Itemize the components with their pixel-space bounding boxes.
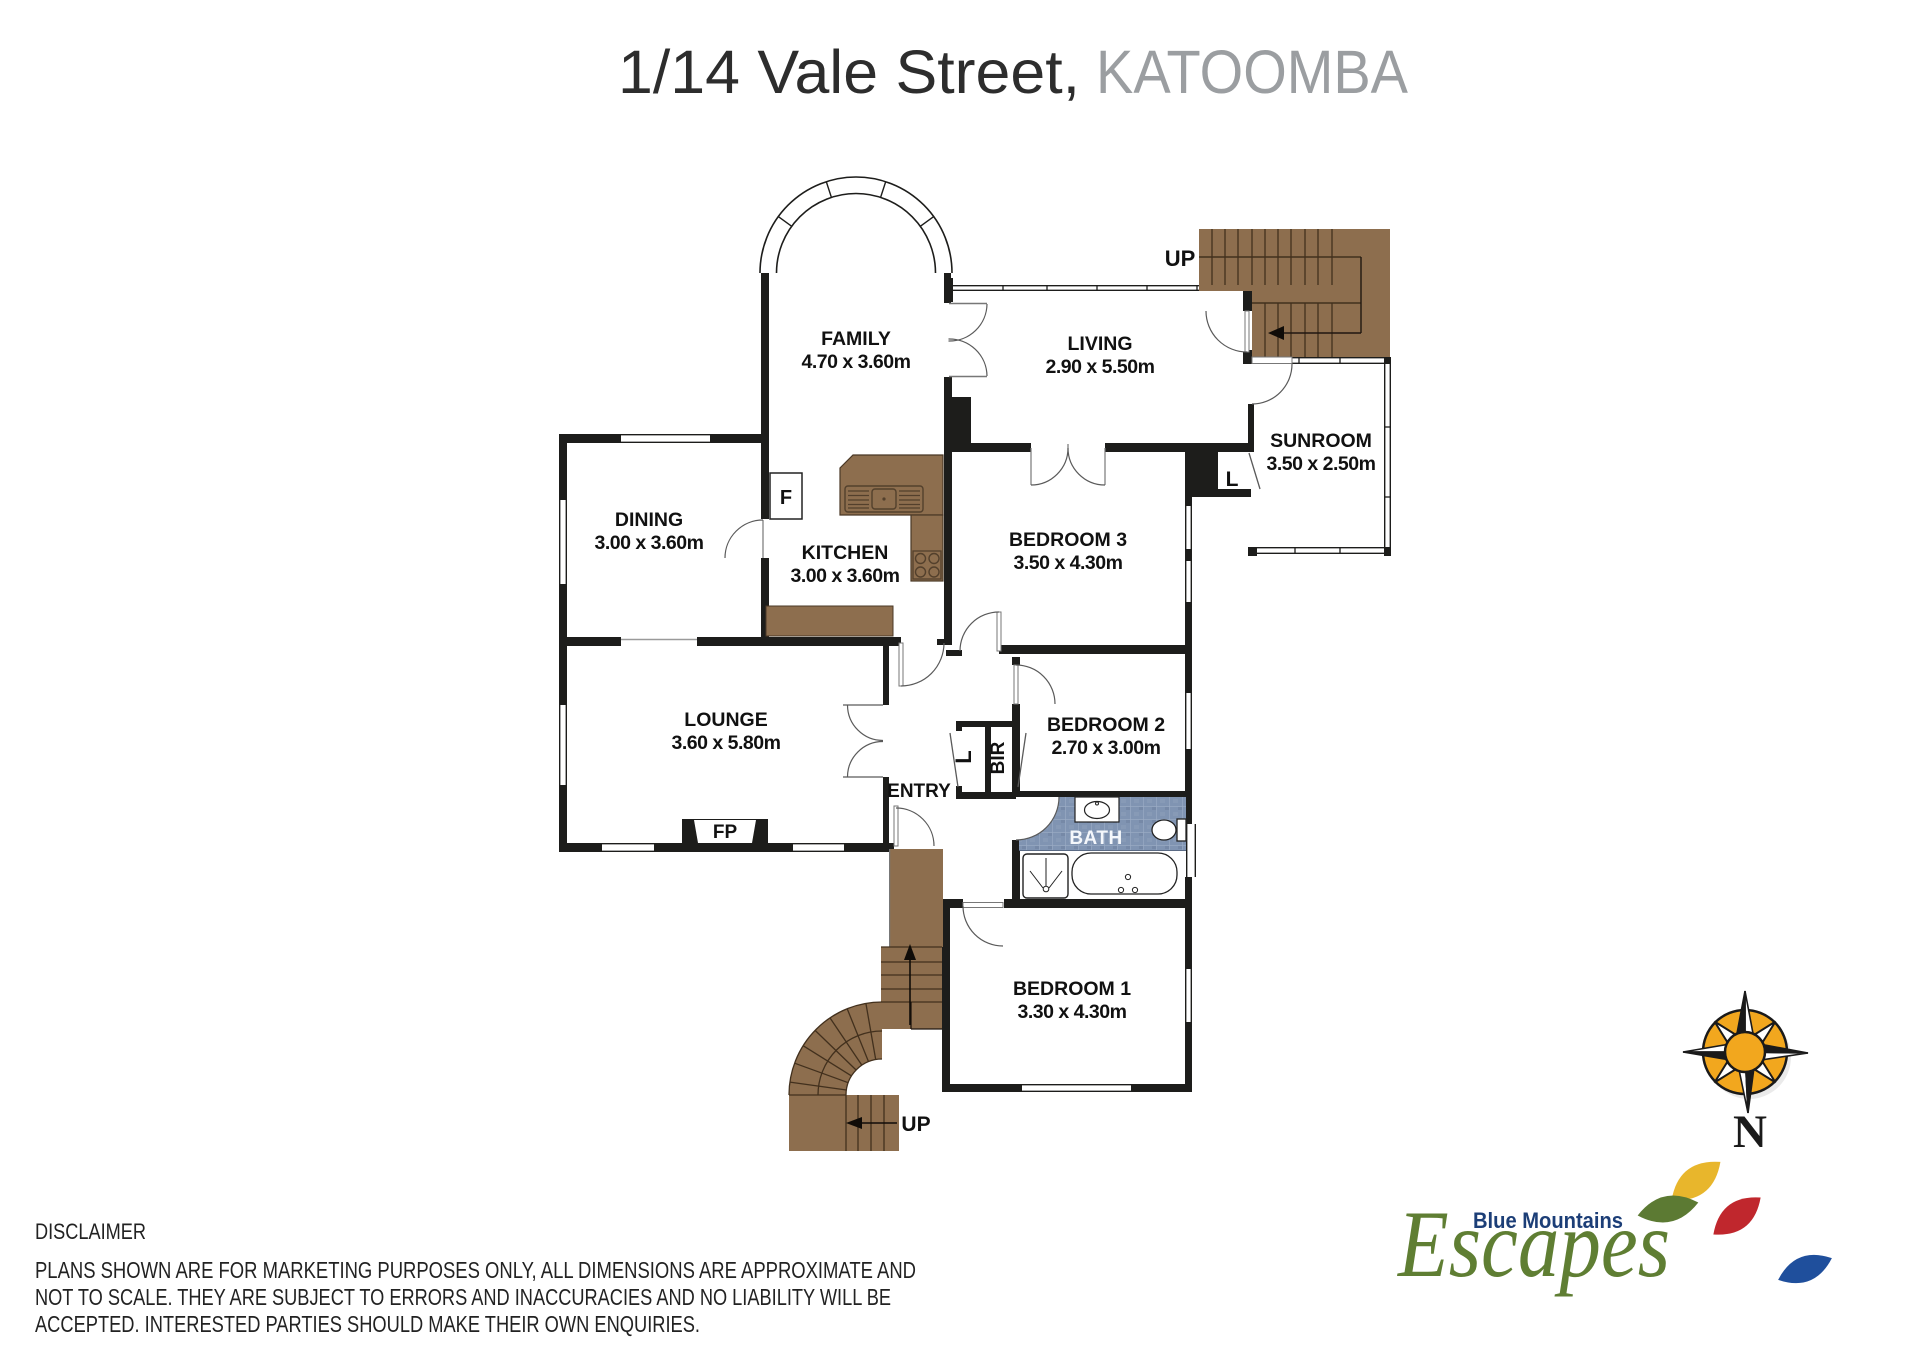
svg-text:BIR: BIR — [988, 741, 1009, 774]
svg-text:2.90 x 5.50m: 2.90 x 5.50m — [1046, 356, 1155, 378]
svg-text:LOUNGE: LOUNGE — [684, 709, 767, 731]
svg-text:3.00 x 3.60m: 3.00 x 3.60m — [791, 565, 900, 587]
svg-text:3.60 x 5.80m: 3.60 x 5.80m — [672, 732, 781, 754]
svg-text:L: L — [1226, 468, 1239, 491]
svg-text:SUNROOM: SUNROOM — [1270, 430, 1372, 452]
svg-text:4.70 x 3.60m: 4.70 x 3.60m — [802, 351, 911, 373]
svg-text:UP: UP — [1165, 246, 1196, 271]
svg-text:3.30 x 4.30m: 3.30 x 4.30m — [1018, 1001, 1127, 1023]
svg-text:F: F — [780, 487, 792, 509]
svg-text:KATOOMBA: KATOOMBA — [1096, 38, 1408, 106]
svg-text:FAMILY: FAMILY — [821, 328, 891, 350]
svg-text:LIVING: LIVING — [1067, 333, 1132, 355]
svg-text:BEDROOM 3: BEDROOM 3 — [1009, 529, 1127, 551]
svg-text:PLANS SHOWN ARE FOR MARKETING: PLANS SHOWN ARE FOR MARKETING PURPOSES O… — [35, 1257, 916, 1283]
svg-text:Escapes: Escapes — [1396, 1191, 1670, 1297]
svg-text:KITCHEN: KITCHEN — [802, 542, 889, 564]
svg-text:3.00 x 3.60m: 3.00 x 3.60m — [595, 532, 704, 554]
svg-text:L: L — [951, 750, 976, 763]
svg-text:FP: FP — [713, 822, 738, 843]
svg-text:N: N — [1733, 1106, 1767, 1158]
svg-text:3.50 x 4.30m: 3.50 x 4.30m — [1014, 552, 1123, 574]
svg-text:BEDROOM 2: BEDROOM 2 — [1047, 714, 1165, 736]
svg-text:ACCEPTED. INTERESTED PARTIES S: ACCEPTED. INTERESTED PARTIES SHOULD MAKE… — [35, 1311, 700, 1337]
svg-text:BATH: BATH — [1069, 828, 1122, 849]
svg-text:ENTRY: ENTRY — [887, 781, 951, 802]
svg-text:1/14 Vale Street,: 1/14 Vale Street, — [618, 38, 1080, 106]
svg-text:DINING: DINING — [615, 509, 683, 531]
svg-text:BEDROOM 1: BEDROOM 1 — [1013, 978, 1131, 1000]
svg-text:DISCLAIMER: DISCLAIMER — [35, 1219, 146, 1244]
svg-text:3.50 x 2.50m: 3.50 x 2.50m — [1267, 453, 1376, 475]
svg-text:NOT TO SCALE. THEY ARE SUBJECT: NOT TO SCALE. THEY ARE SUBJECT TO ERRORS… — [35, 1284, 891, 1310]
svg-text:UP: UP — [901, 1113, 930, 1136]
svg-text:2.70 x 3.00m: 2.70 x 3.00m — [1052, 737, 1161, 759]
